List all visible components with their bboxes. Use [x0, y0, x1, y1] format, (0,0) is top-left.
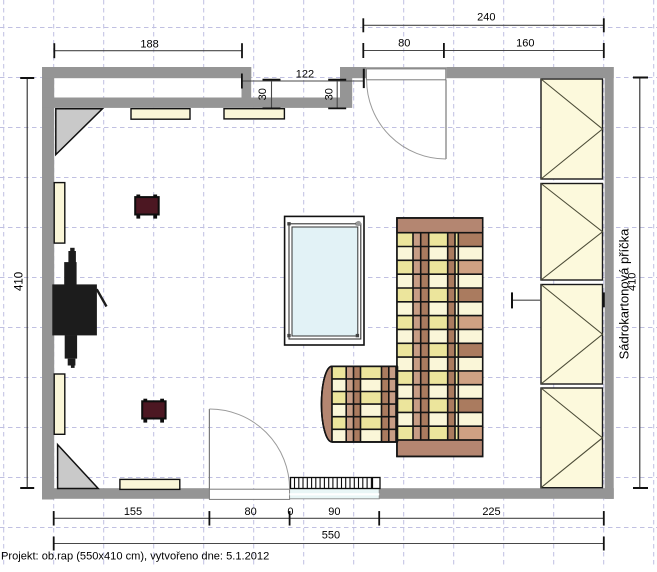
svg-text:410: 410: [13, 272, 25, 291]
svg-text:155: 155: [124, 506, 142, 518]
svg-text:80: 80: [244, 506, 256, 518]
svg-text:225: 225: [482, 506, 500, 518]
svg-text:550: 550: [322, 530, 340, 542]
svg-text:160: 160: [516, 37, 534, 49]
svg-text:Projekt: ob.rap (550x410 cm),: Projekt: ob.rap (550x410 cm), vytvořeno …: [1, 551, 269, 563]
svg-text:0: 0: [287, 506, 293, 518]
svg-text:80: 80: [398, 37, 410, 49]
svg-text:410: 410: [627, 273, 639, 291]
svg-text:90: 90: [328, 506, 340, 518]
svg-text:188: 188: [140, 38, 158, 50]
svg-text:122: 122: [296, 69, 314, 81]
svg-text:30: 30: [257, 88, 269, 100]
svg-text:30: 30: [324, 88, 336, 100]
svg-text:240: 240: [477, 12, 495, 24]
svg-text:Sádrokartonová příčka: Sádrokartonová příčka: [617, 228, 632, 360]
